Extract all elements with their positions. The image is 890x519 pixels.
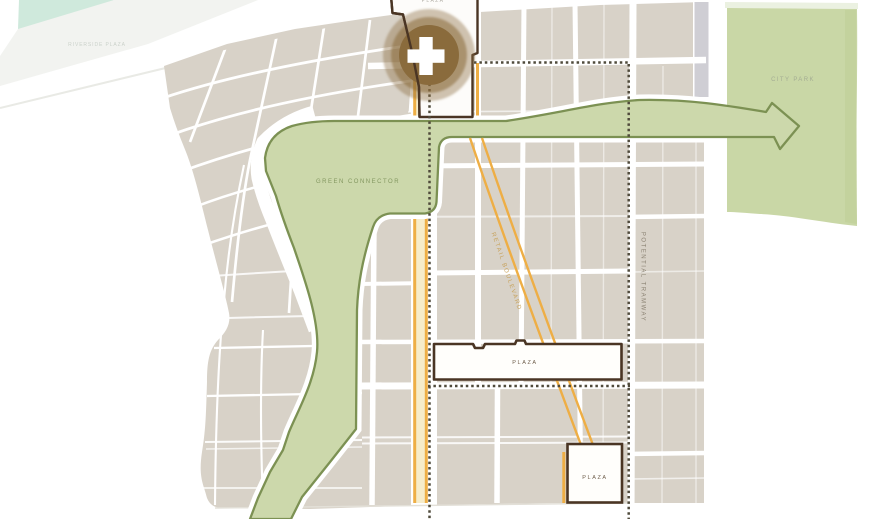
svg-text:RIVERSIDE PLAZA: RIVERSIDE PLAZA	[68, 42, 126, 48]
svg-text:PLAZA: PLAZA	[512, 360, 537, 366]
svg-text:PLAZA: PLAZA	[422, 0, 445, 4]
svg-text:PLAZA: PLAZA	[582, 475, 607, 481]
svg-text:POTENTIAL TRAMWAY: POTENTIAL TRAMWAY	[640, 232, 646, 322]
svg-text:GREEN CONNECTOR: GREEN CONNECTOR	[316, 179, 400, 185]
svg-text:CITY PARK: CITY PARK	[771, 77, 815, 83]
